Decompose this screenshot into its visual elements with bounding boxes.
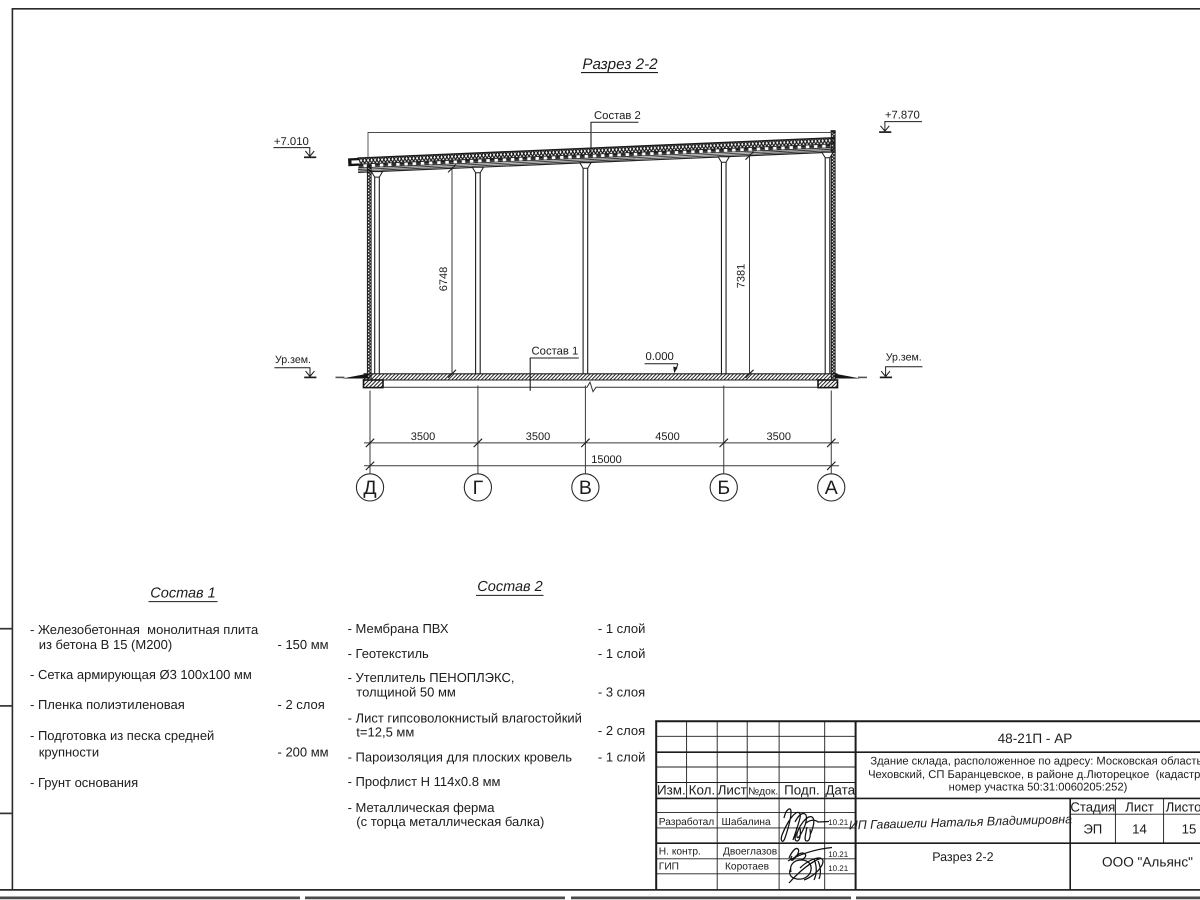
svg-text:Ур.зем.: Ур.зем. — [886, 352, 922, 364]
svg-text:10.21: 10.21 — [828, 818, 849, 827]
svg-text:48-21П - АР: 48-21П - АР — [998, 731, 1073, 746]
svg-text:- Металлическая ферма: - Металлическая ферма — [348, 800, 496, 815]
svg-text:Двоеглазов: Двоеглазов — [723, 846, 777, 857]
svg-text:Дата: Дата — [825, 783, 855, 798]
svg-text:Лист: Лист — [1125, 799, 1154, 814]
svg-text:t=12,5 мм: t=12,5 мм — [356, 725, 414, 740]
svg-text:ООО "Альянс": ООО "Альянс" — [1102, 855, 1193, 870]
svg-text:- Пароизоляция для плоских кро: - Пароизоляция для плоских кровель — [348, 749, 573, 764]
svg-text:- 150 мм: - 150 мм — [278, 637, 329, 652]
svg-text:10.21: 10.21 — [828, 864, 849, 873]
svg-text:- 1 слой: - 1 слой — [598, 621, 646, 636]
svg-text:Подп.: Подп. — [784, 783, 820, 798]
svg-text:Листов: Листов — [1166, 799, 1200, 814]
svg-text:- Профлист Н 114х0.8 мм: - Профлист Н 114х0.8 мм — [348, 774, 501, 789]
svg-text:Кол.: Кол. — [689, 783, 716, 798]
svg-text:3500: 3500 — [767, 431, 791, 443]
svg-text:- 1 слой: - 1 слой — [598, 749, 646, 764]
svg-text:Стадия: Стадия — [1070, 799, 1115, 814]
svg-text:- Геотекстиль: - Геотекстиль — [348, 646, 429, 661]
svg-text:15: 15 — [1182, 822, 1197, 837]
svg-text:7381: 7381 — [735, 264, 747, 288]
svg-text:- 2 слоя: - 2 слоя — [598, 723, 645, 738]
svg-text:15000: 15000 — [591, 454, 622, 466]
svg-text:А: А — [825, 477, 838, 499]
svg-text:(с торца металлическая балка): (с торца металлическая балка) — [356, 814, 544, 829]
svg-text:Разрез 2-2: Разрез 2-2 — [582, 56, 658, 73]
svg-text:Разработал: Разработал — [659, 817, 715, 828]
svg-text:- Пленка полиэтиленовая: - Пленка полиэтиленовая — [30, 697, 185, 712]
svg-text:В: В — [579, 477, 592, 499]
svg-text:6748: 6748 — [438, 267, 450, 291]
svg-text:14: 14 — [1132, 822, 1147, 837]
svg-text:+7.870: +7.870 — [885, 109, 920, 121]
svg-text:- Мембрана ПВХ: - Мембрана ПВХ — [348, 621, 449, 636]
svg-text:- Железобетонная монолитная п: - Железобетонная монолитная плита — [30, 622, 259, 637]
svg-text:Чеховский, СП Баранцевское, в: Чеховский, СП Баранцевское, в районе д.Л… — [868, 769, 1200, 781]
svg-text:3500: 3500 — [526, 431, 550, 443]
svg-text:Изм.: Изм. — [657, 783, 686, 798]
svg-text:ГИП: ГИП — [659, 862, 679, 873]
svg-text:Состав 2: Состав 2 — [594, 110, 641, 122]
svg-text:Б: Б — [717, 477, 730, 499]
svg-text:Д: Д — [363, 477, 376, 499]
svg-text:Разрез 2-2: Разрез 2-2 — [932, 850, 993, 864]
svg-text:Г: Г — [473, 477, 484, 499]
svg-text:Ур.зем.: Ур.зем. — [275, 354, 311, 366]
svg-text:- 200 мм: - 200 мм — [278, 744, 329, 759]
svg-text:- 2 слоя: - 2 слоя — [278, 697, 325, 712]
svg-text:номер участка 50:31:0060205:25: номер участка 50:31:0060205:252) — [949, 781, 1128, 793]
svg-text:4500: 4500 — [655, 431, 679, 443]
svg-text:- Грунт основания: - Грунт основания — [30, 775, 138, 790]
svg-text:крупности: крупности — [39, 744, 99, 759]
svg-text:- 1 слой: - 1 слой — [598, 646, 646, 661]
svg-text:толщиной 50 мм: толщиной 50 мм — [356, 684, 456, 699]
svg-text:- Сетка армирующая Ø3 100х100: - Сетка армирующая Ø3 100х100 мм — [30, 667, 252, 682]
svg-text:0.000: 0.000 — [646, 351, 674, 363]
svg-text:- Подготовка из песка средней: - Подготовка из песка средней — [30, 728, 214, 743]
svg-text:- 3 слоя: - 3 слоя — [598, 684, 645, 699]
svg-text:из бетона В 15 (М200): из бетона В 15 (М200) — [39, 637, 173, 652]
svg-text:+7.010: +7.010 — [274, 136, 309, 148]
svg-text:Состав 2: Состав 2 — [477, 579, 542, 595]
svg-text:Н. контр.: Н. контр. — [659, 846, 701, 857]
svg-text:Состав 1: Состав 1 — [150, 586, 215, 602]
svg-text:ЭП: ЭП — [1083, 822, 1102, 837]
svg-text:Коротаев: Коротаев — [725, 862, 769, 873]
svg-text:- Лист гипсоволокнистый влагос: - Лист гипсоволокнистый влагостойкий — [348, 710, 582, 725]
svg-text:№док.: №док. — [748, 787, 778, 798]
svg-text:3500: 3500 — [411, 431, 435, 443]
svg-text:Состав 1: Состав 1 — [532, 345, 579, 357]
svg-text:10.21: 10.21 — [828, 850, 849, 859]
svg-text:Здание склада, расположенное п: Здание склада, расположенное по адресу: … — [870, 756, 1200, 768]
svg-text:Шабалина: Шабалина — [722, 817, 772, 828]
svg-text:Лист: Лист — [718, 783, 747, 798]
svg-text:- Утеплитель ПЕНОПЛЭКС,: - Утеплитель ПЕНОПЛЭКС, — [348, 670, 515, 685]
